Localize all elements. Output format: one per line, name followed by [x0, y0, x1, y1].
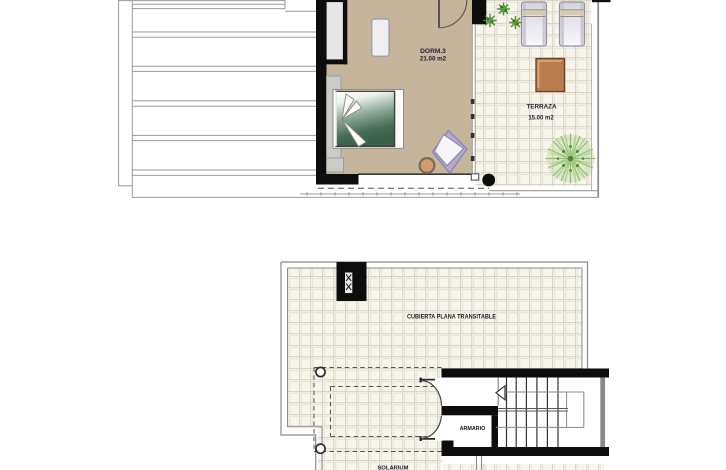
svg-text:CUBIERTA PLANA TRANSITABLE: CUBIERTA PLANA TRANSITABLE	[407, 315, 496, 321]
svg-text:TERRAZA: TERRAZA	[526, 104, 557, 111]
svg-text:ARMARIO: ARMARIO	[460, 426, 486, 432]
svg-text:DORM.3: DORM.3	[420, 48, 446, 55]
svg-text:SOLARIUM: SOLARIUM	[378, 466, 409, 470]
svg-text:21.00 m2: 21.00 m2	[420, 56, 447, 63]
svg-text:15.00 m2: 15.00 m2	[528, 116, 554, 122]
